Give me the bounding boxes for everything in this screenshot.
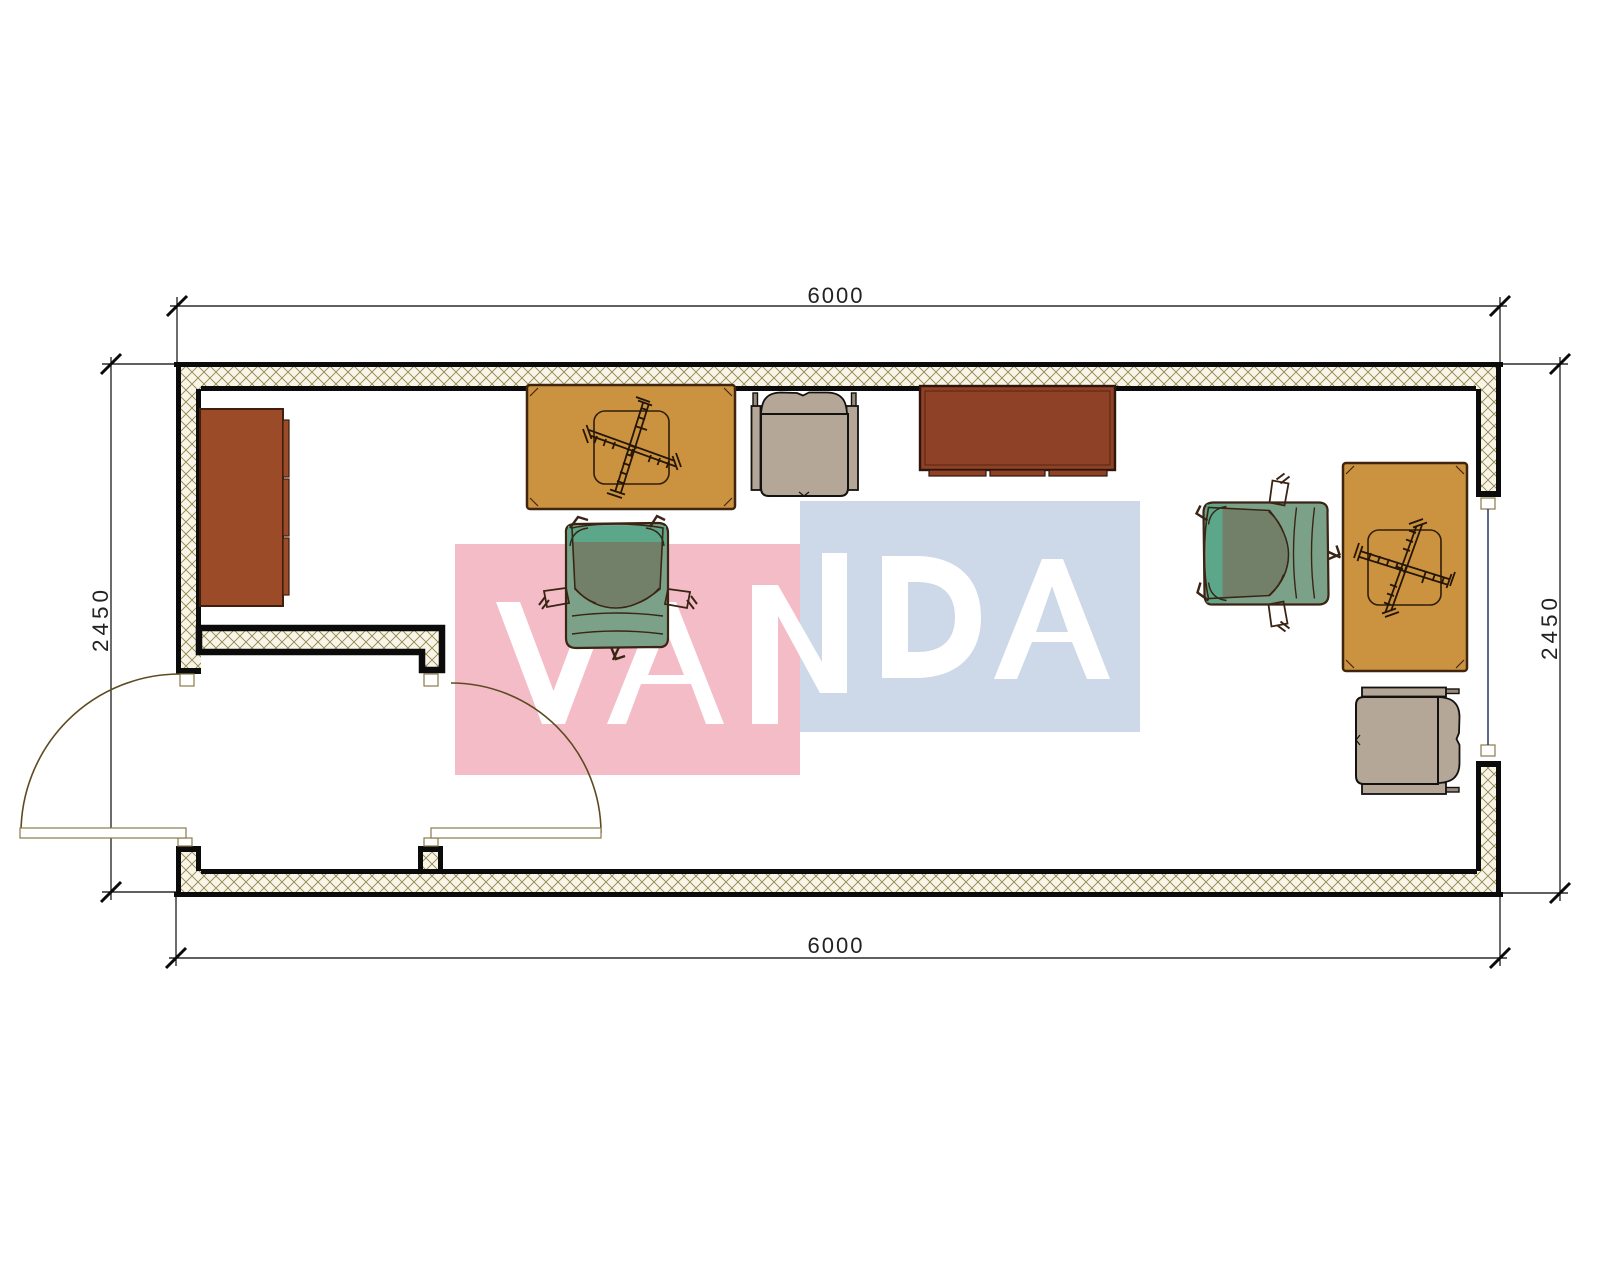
svg-text:6000: 6000 [808,933,865,958]
svg-text:6000: 6000 [808,283,865,308]
svg-text:2450: 2450 [88,586,113,652]
svg-text:2450: 2450 [1537,594,1562,660]
